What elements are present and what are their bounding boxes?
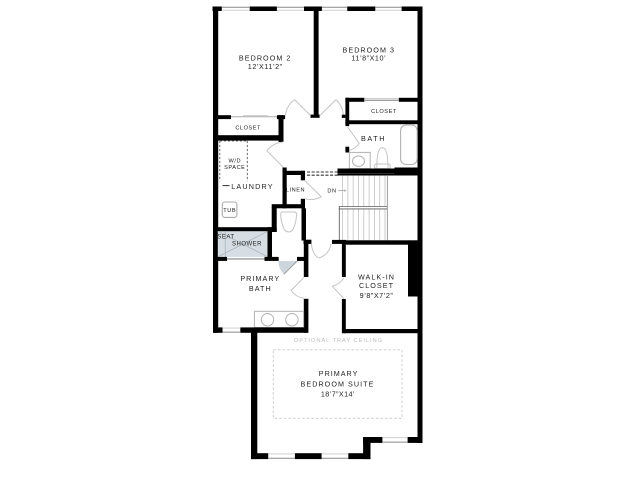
svg-text:CLOSET: CLOSET bbox=[371, 109, 397, 115]
svg-text:BATH: BATH bbox=[361, 134, 386, 143]
svg-text:DN: DN bbox=[327, 189, 336, 195]
svg-text:SHOWER: SHOWER bbox=[232, 241, 262, 247]
svg-text:SEAT: SEAT bbox=[217, 234, 234, 240]
svg-text:LAUNDRY: LAUNDRY bbox=[231, 182, 274, 191]
svg-text:OPTIONAL TRAY CEILING: OPTIONAL TRAY CEILING bbox=[294, 338, 383, 344]
svg-text:W/D: W/D bbox=[229, 159, 242, 165]
svg-text:TUB: TUB bbox=[223, 208, 236, 214]
svg-text:LINEN: LINEN bbox=[286, 188, 305, 194]
svg-text:CLOSET: CLOSET bbox=[235, 125, 261, 131]
svg-text:BEDROOM SUITE: BEDROOM SUITE bbox=[301, 380, 375, 389]
svg-text:12’X11’2”: 12’X11’2” bbox=[248, 62, 283, 71]
svg-text:18’7”X14’: 18’7”X14’ bbox=[321, 390, 355, 399]
svg-text:BATH: BATH bbox=[249, 284, 272, 293]
svg-text:9’8”X7’2”: 9’8”X7’2” bbox=[360, 291, 394, 300]
svg-text:SPACE: SPACE bbox=[224, 165, 245, 171]
svg-text:PRIMARY: PRIMARY bbox=[319, 369, 359, 378]
svg-text:PRIMARY: PRIMARY bbox=[240, 274, 280, 283]
svg-text:11’8”X10’: 11’8”X10’ bbox=[351, 54, 386, 63]
svg-text:CLOSET: CLOSET bbox=[359, 281, 394, 290]
